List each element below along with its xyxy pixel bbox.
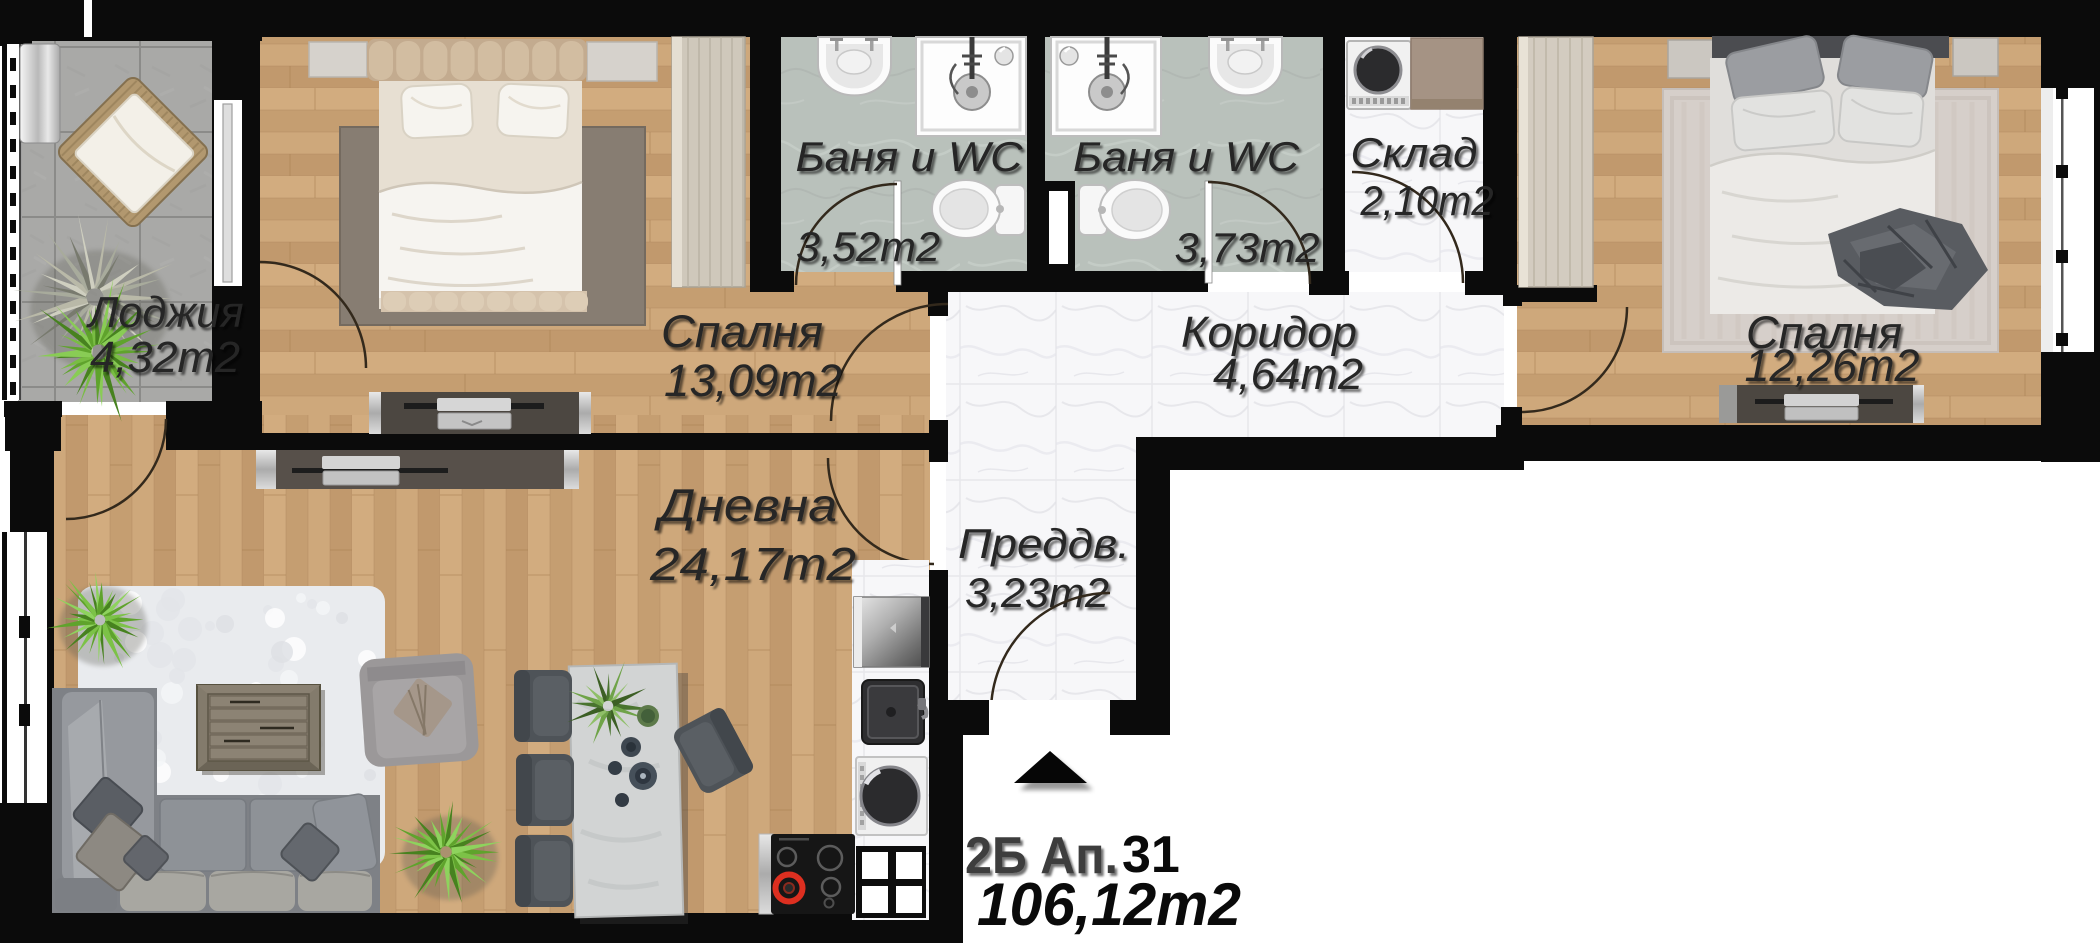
svg-text:24,17m2: 24,17m2	[649, 538, 856, 590]
svg-text:3,52m2: 3,52m2	[796, 223, 940, 270]
svg-text:Баня и WC: Баня и WC	[796, 133, 1024, 180]
svg-text:4,64m2: 4,64m2	[1213, 350, 1363, 399]
svg-text:Лоджия: Лоджия	[86, 288, 244, 337]
svg-text:Преддв.: Преддв.	[958, 520, 1130, 567]
svg-text:Склад: Склад	[1351, 129, 1478, 176]
svg-text:3,73m2: 3,73m2	[1175, 224, 1320, 271]
svg-text:106,12m2: 106,12m2	[977, 871, 1241, 938]
svg-text:12,26m2: 12,26m2	[1745, 340, 1920, 391]
svg-text:13,09m2: 13,09m2	[664, 355, 842, 406]
svg-text:Дневна: Дневна	[653, 479, 837, 531]
svg-text:3,23m2: 3,23m2	[965, 569, 1109, 616]
svg-text:2,10m2: 2,10m2	[1360, 177, 1494, 224]
svg-text:4,32m2: 4,32m2	[90, 333, 240, 382]
svg-text:Баня и WC: Баня и WC	[1073, 133, 1300, 180]
svg-text:Спалня: Спалня	[661, 306, 823, 357]
